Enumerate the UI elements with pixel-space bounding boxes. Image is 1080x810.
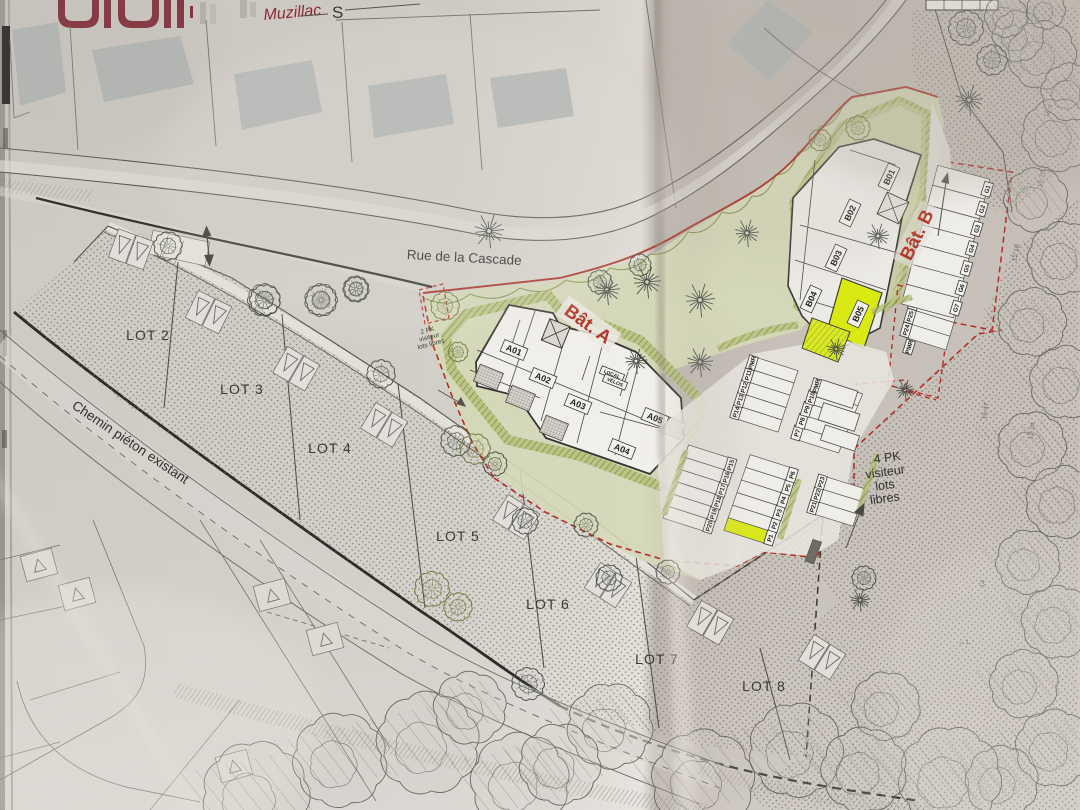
svg-text:LOT 5: LOT 5 bbox=[436, 528, 480, 544]
svg-text:LOT 2: LOT 2 bbox=[126, 327, 170, 343]
svg-text:S: S bbox=[332, 3, 343, 22]
svg-text:LOT 6: LOT 6 bbox=[526, 596, 570, 612]
svg-text:LOT 3: LOT 3 bbox=[220, 381, 264, 397]
svg-text:LOT 8: LOT 8 bbox=[742, 678, 786, 694]
svg-text:LOT 4: LOT 4 bbox=[308, 440, 352, 456]
